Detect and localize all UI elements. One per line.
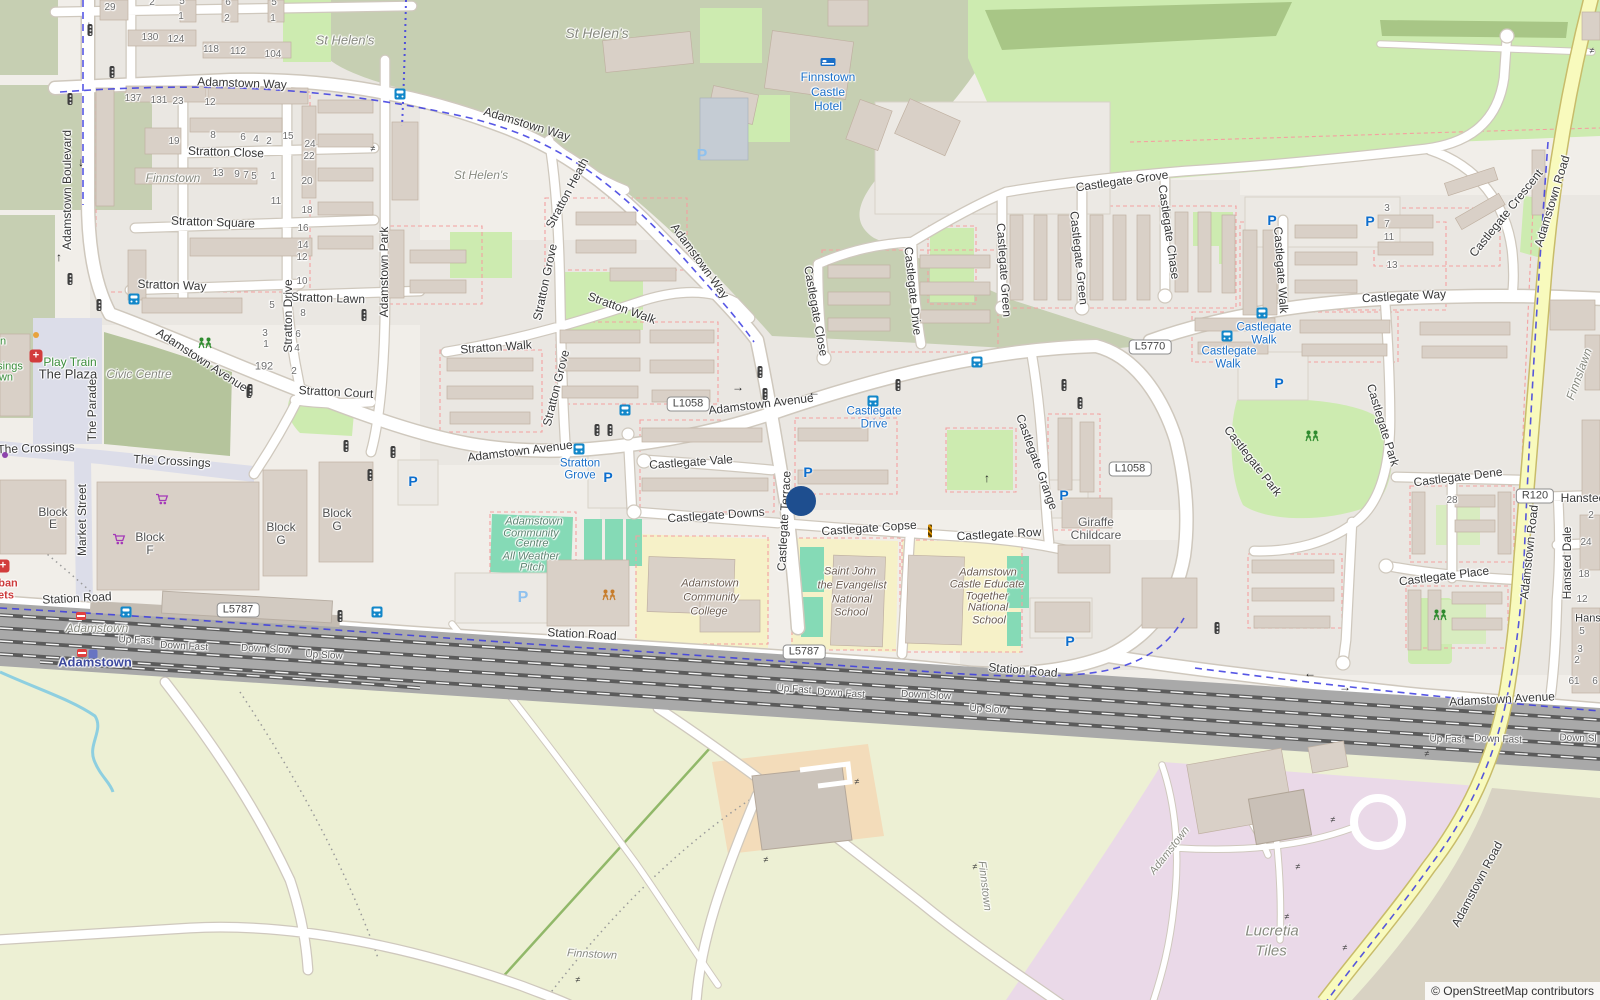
map-canvas[interactable]: Adamstown WayAdamstown WayAdamstown WayS… bbox=[0, 0, 1600, 1000]
location-marker[interactable] bbox=[786, 486, 816, 516]
attribution[interactable]: © OpenStreetMap contributors bbox=[1425, 982, 1600, 1000]
